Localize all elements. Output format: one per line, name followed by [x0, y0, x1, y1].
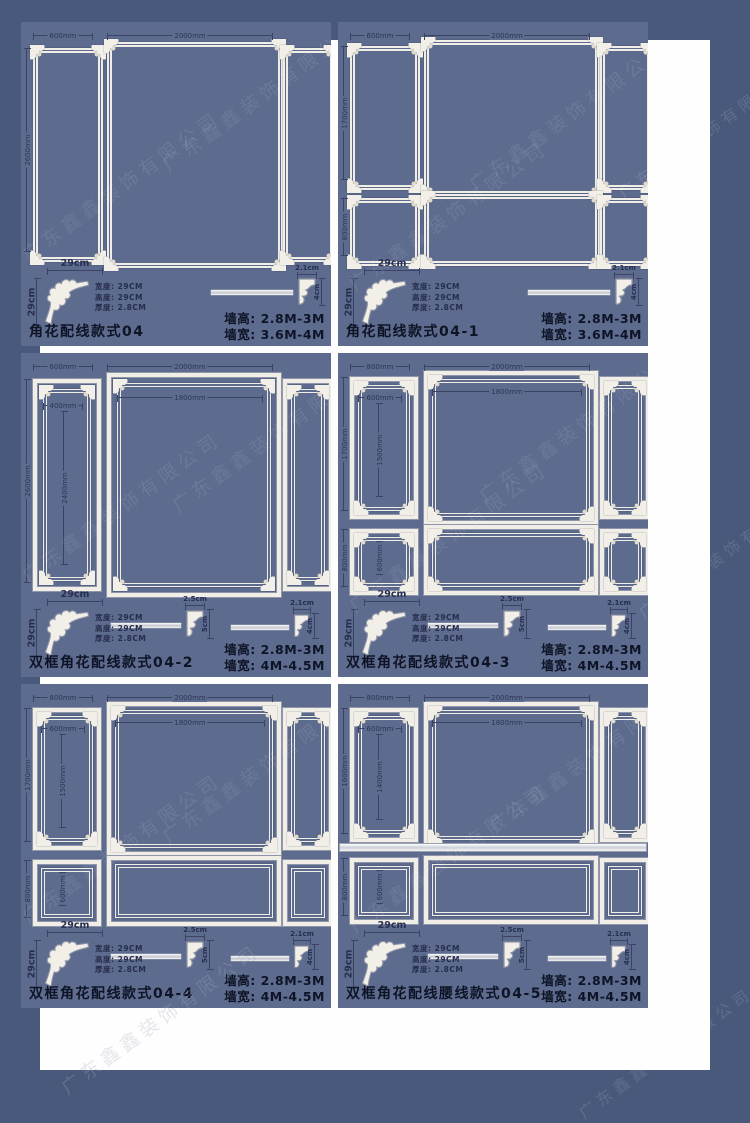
dimension-line: 2000mm	[424, 366, 590, 367]
dimension-label: 2600mm	[24, 463, 32, 498]
corner-ornament-icon	[354, 499, 370, 515]
crown-molding-image	[360, 940, 408, 988]
frame-outline	[350, 46, 420, 190]
corner-ornament-icon	[639, 253, 648, 269]
corner-ornament-icon	[639, 195, 648, 211]
dimension-line: 2000mm	[107, 35, 273, 36]
corner-ornament-icon	[421, 191, 437, 207]
frame-outline	[358, 385, 410, 511]
corner-ornament-icon	[280, 249, 296, 265]
molding-specs: 宽度: 29CM 高度: 29CM 厚度: 2.8CM	[412, 944, 463, 976]
dimension-line: 1600mm	[343, 708, 344, 834]
dimension-line: 4cm	[638, 278, 639, 306]
dimension-line: 4cm	[314, 613, 315, 639]
dimension-label: 2.1cm	[288, 599, 316, 607]
spec-height: 高度: 29CM	[95, 624, 146, 635]
dimension-line: 29cm	[353, 278, 354, 326]
corner-ornament-icon	[322, 249, 331, 265]
wall-width: 墙宽: 3.6M-4M	[541, 327, 642, 343]
corner-ornament-icon	[428, 706, 444, 722]
crown-molding-image	[360, 278, 408, 326]
panel-title: 双框角花配线腰线款式04-5	[346, 983, 542, 1003]
corner-ornament-icon	[30, 45, 46, 61]
wall-width: 墙宽: 4M-4.5M	[541, 658, 642, 674]
corner-ornament-icon	[313, 712, 329, 728]
corner-ornament-icon	[261, 836, 277, 852]
frame-outline	[432, 533, 590, 587]
dimension-label: 4cm	[623, 616, 631, 636]
dimension-line: 5cm	[209, 940, 210, 970]
dimension-line: 1500mm	[61, 734, 62, 828]
corner-ornament-icon	[428, 505, 444, 521]
corner-ornament-icon	[347, 195, 363, 211]
dimension-line: 29cm	[47, 932, 103, 933]
dimension-line: 800mm	[26, 860, 27, 918]
frame-outline	[608, 537, 642, 587]
corner-ornament-icon	[287, 830, 303, 846]
dimension-line: 600mm	[61, 872, 62, 906]
spec-thickness: 厚度: 2.8CM	[95, 965, 146, 976]
catalog-sheet: { "watermark": "广东鑫鑫装饰有限公司", "colors": {…	[0, 0, 750, 1110]
panel-title: 双框角花配线款式04-4	[29, 983, 194, 1003]
wall-width: 墙宽: 4M-4.5M	[224, 989, 325, 1005]
dimension-label: 4cm	[630, 282, 638, 302]
dimension-line: 2.1cm	[297, 274, 317, 275]
frame-outline	[432, 864, 590, 916]
dimension-line: 1700mm	[343, 46, 344, 180]
spec-width: 宽度: 29CM	[412, 282, 463, 293]
corner-ornament-icon	[578, 575, 594, 591]
frame-outline	[424, 40, 600, 196]
dimension-line: 1700mm	[343, 377, 344, 511]
corner-ornament-icon	[428, 828, 444, 844]
dimension-line: 1800mm	[117, 397, 263, 398]
dimension-label: 4cm	[623, 947, 631, 967]
frame-outline	[107, 42, 283, 268]
wall-height: 墙高: 2.8M-3M	[224, 642, 325, 658]
dimension-line: 2.1cm	[610, 609, 628, 610]
dimension-label: 2000mm	[172, 363, 207, 371]
molding-strip	[548, 625, 606, 630]
corner-ornament-icon	[597, 195, 613, 211]
dimension-line: 29cm	[364, 270, 420, 271]
dimension-line: 5cm	[526, 940, 527, 970]
corner-ornament-icon	[604, 822, 620, 838]
spec-width: 宽度: 29CM	[412, 613, 463, 624]
corner-ornament-icon	[113, 575, 129, 591]
dimension-label: 2.1cm	[605, 599, 633, 607]
wall-height: 墙高: 2.8M-3M	[541, 973, 642, 989]
dimension-label: 600mm	[365, 394, 396, 402]
dimension-label: 1600mm	[341, 753, 349, 788]
dimension-label: 800mm	[341, 212, 349, 243]
frame-outline	[432, 379, 590, 517]
dimension-label: 1800mm	[489, 719, 524, 727]
dimension-line: 2000mm	[107, 366, 273, 367]
spec-width: 宽度: 29CM	[95, 282, 146, 293]
frame-outline	[291, 868, 325, 918]
corner-ornament-icon	[604, 712, 620, 728]
dimension-line: 2.1cm	[610, 940, 628, 941]
spec-height: 高度: 29CM	[95, 293, 146, 304]
corner-ornament-icon	[39, 385, 55, 401]
corner-ornament-icon	[37, 830, 53, 846]
dimension-label: 2000mm	[489, 694, 524, 702]
dimension-label: 2.5cm	[498, 926, 526, 934]
dimension-label: 5cm	[518, 945, 526, 965]
frame-outline	[608, 716, 642, 834]
dimension-line: 29cm	[353, 940, 354, 988]
corner-ornament-icon	[604, 575, 620, 591]
dimension-label: 1700mm	[341, 95, 349, 130]
spec-height: 高度: 29CM	[95, 955, 146, 966]
corner-ornament-icon	[428, 575, 444, 591]
frame-outline	[358, 716, 410, 834]
dimension-label: 600mm	[59, 874, 67, 905]
frame-outline	[350, 198, 420, 266]
dimension-label: 2000mm	[489, 32, 524, 40]
dimension-line: 800mm	[350, 697, 410, 698]
corner-ornament-icon	[604, 499, 620, 515]
dimension-line: 1500mm	[378, 403, 379, 497]
corner-ornament-icon	[313, 385, 329, 401]
molding-strip	[211, 290, 293, 295]
spec-thickness: 厚度: 2.8CM	[95, 634, 146, 645]
dimension-label: 4cm	[306, 947, 314, 967]
wall-height: 墙高: 2.8M-3M	[224, 311, 325, 327]
frame-outline	[33, 48, 103, 262]
corner-ornament-icon	[428, 529, 444, 545]
frame-outline	[358, 866, 410, 916]
dimension-line: 29cm	[364, 601, 420, 602]
dimension-label: 29cm	[376, 591, 409, 599]
dimension-line: 600mm	[33, 35, 93, 36]
dimension-label: 2.1cm	[610, 264, 638, 272]
dimension-label: 800mm	[341, 872, 349, 903]
panel-style-04: 600mm 2000mm 2600mm 29cm 29cm 宽度: 29CM 高…	[21, 22, 331, 346]
spec-width: 宽度: 29CM	[95, 944, 146, 955]
dimension-label: 29cm	[344, 286, 355, 319]
frame-outline	[115, 864, 273, 918]
corner-ornament-icon	[354, 822, 370, 838]
dimension-line: 29cm	[364, 932, 420, 933]
corner-ornament-icon	[79, 385, 95, 401]
dimension-label: 29cm	[376, 922, 409, 930]
dimension-line: 29cm	[36, 278, 37, 326]
dimension-label: 2000mm	[489, 363, 524, 371]
crown-molding-image	[360, 609, 408, 657]
panel-title: 角花配线款式04	[29, 321, 144, 341]
spec-height: 高度: 29CM	[412, 293, 463, 304]
frame-outline	[291, 716, 325, 842]
frame-outline	[608, 866, 642, 916]
dimension-line: 2000mm	[107, 697, 273, 698]
corner-ornament-icon	[428, 375, 444, 391]
dimension-label: 29cm	[59, 591, 92, 599]
panel-style-04-4: 800mm 2000mm 1700mm 800mm 600mm 1500mm 1…	[21, 684, 331, 1008]
dimension-line: 800mm	[343, 858, 344, 916]
frame-outline	[608, 385, 642, 511]
wall-spec: 墙高: 2.8M-3M 墙宽: 4M-4.5M	[224, 642, 325, 674]
panel-style-04-2: 600mm 2000mm 2600mm 400mm 2400mm 1800mm …	[21, 353, 331, 677]
dimension-label: 800mm	[48, 694, 79, 702]
wall-height: 墙高: 2.8M-3M	[224, 973, 325, 989]
corner-ornament-icon	[630, 575, 646, 591]
frame-outline	[600, 46, 648, 190]
corner-ornament-icon	[630, 712, 646, 728]
dimension-line: 600mm	[358, 728, 402, 729]
wall-spec: 墙高: 2.8M-3M 墙宽: 4M-4.5M	[541, 642, 642, 674]
dimension-label: 29cm	[27, 617, 38, 650]
corner-ornament-icon	[639, 43, 648, 59]
dimension-line: 5cm	[526, 609, 527, 639]
panel-style-04-5: 800mm 2000mm 1600mm 800mm 600mm 1400mm 1…	[338, 684, 648, 1008]
molding-specs: 宽度: 29CM 高度: 29CM 厚度: 2.8CM	[95, 613, 146, 645]
dimension-line: 4cm	[631, 944, 632, 970]
molding-specs: 宽度: 29CM 高度: 29CM 厚度: 2.8CM	[412, 282, 463, 314]
wall-width: 墙宽: 3.6M-4M	[224, 327, 325, 343]
wall-spec: 墙高: 2.8M-3M 墙宽: 4M-4.5M	[541, 973, 642, 1005]
corner-ornament-icon	[39, 569, 55, 585]
corner-ornament-icon	[259, 379, 275, 395]
crown-molding-image	[43, 278, 91, 326]
dimension-label: 4cm	[313, 282, 321, 302]
spec-width: 宽度: 29CM	[412, 944, 463, 955]
dimension-line: 29cm	[353, 609, 354, 657]
corner-ornament-icon	[322, 45, 331, 61]
frame-outline	[115, 710, 273, 848]
dimension-label: 1700mm	[341, 426, 349, 461]
dimension-label: 800mm	[365, 363, 396, 371]
corner-ornament-icon	[639, 177, 648, 193]
dimension-label: 1800mm	[172, 719, 207, 727]
dimension-line: 2.5cm	[502, 936, 522, 937]
corner-ornament-icon	[604, 533, 620, 549]
wall-height: 墙高: 2.8M-3M	[541, 311, 642, 327]
dimension-label: 600mm	[365, 725, 396, 733]
dimension-label: 1500mm	[59, 763, 67, 798]
dimension-line: 2.1cm	[293, 609, 311, 610]
dimension-label: 600mm	[376, 543, 384, 574]
dimension-line: 29cm	[36, 940, 37, 988]
dimension-line: 29cm	[47, 270, 103, 271]
dimension-line: 800mm	[33, 697, 93, 698]
spec-thickness: 厚度: 2.8CM	[412, 965, 463, 976]
corner-ornament-icon	[113, 379, 129, 395]
dimension-line: 2.1cm	[293, 940, 311, 941]
dimension-line: 1800mm	[432, 391, 582, 392]
panel-style-04-3: 800mm 2000mm 1700mm 800mm 600mm 1500mm 1…	[338, 353, 648, 677]
corner-ornament-icon	[630, 381, 646, 397]
wall-width: 墙宽: 4M-4.5M	[224, 658, 325, 674]
corner-ornament-icon	[578, 529, 594, 545]
corner-ornament-icon	[81, 830, 97, 846]
corner-ornament-icon	[578, 505, 594, 521]
corner-ornament-icon	[313, 830, 329, 846]
dimension-label: 29cm	[59, 260, 92, 268]
panel-style-04-1: 600mm 2000mm 1700mm 800mm 29cm 29cm 宽度: …	[338, 22, 648, 346]
corner-ornament-icon	[630, 822, 646, 838]
frame-outline	[41, 716, 93, 842]
corner-ornament-icon	[354, 575, 370, 591]
dimension-line: 4cm	[631, 613, 632, 639]
frame-outline	[291, 389, 325, 581]
molding-strip	[231, 956, 289, 961]
dimension-line: 5cm	[209, 609, 210, 639]
dimension-label: 2.1cm	[288, 930, 316, 938]
dimension-label: 400mm	[48, 402, 79, 410]
dimension-label: 29cm	[59, 922, 92, 930]
dimension-label: 5cm	[518, 614, 526, 634]
spec-thickness: 厚度: 2.8CM	[412, 303, 463, 314]
dimension-line: 600mm	[41, 728, 85, 729]
dimension-label: 2.5cm	[498, 595, 526, 603]
dimension-line: 1400mm	[378, 734, 379, 820]
dimension-line: 400mm	[43, 405, 83, 406]
dimension-label: 600mm	[365, 32, 396, 40]
dimension-label: 800mm	[341, 543, 349, 574]
dimension-label: 1800mm	[172, 394, 207, 402]
corner-ornament-icon	[398, 533, 414, 549]
dimension-line: 29cm	[47, 601, 103, 602]
corner-ornament-icon	[259, 575, 275, 591]
spec-thickness: 厚度: 2.8CM	[95, 303, 146, 314]
chair-rail	[340, 844, 646, 851]
frame-outline	[41, 868, 93, 918]
dimension-label: 1500mm	[376, 432, 384, 467]
corner-ornament-icon	[354, 533, 370, 549]
molding-specs: 宽度: 29CM 高度: 29CM 厚度: 2.8CM	[412, 613, 463, 645]
crown-molding-image	[43, 940, 91, 988]
panel-title: 双框角花配线款式04-3	[346, 652, 511, 672]
corner-ornament-icon	[280, 45, 296, 61]
frame-outline	[283, 48, 331, 262]
dimension-label: 29cm	[344, 617, 355, 650]
corner-ornament-icon	[287, 385, 303, 401]
frame-outline	[117, 383, 271, 587]
frame-outline	[432, 710, 590, 840]
corner-ornament-icon	[111, 706, 127, 722]
wall-spec: 墙高: 2.8M-3M 墙宽: 3.6M-4M	[541, 311, 642, 343]
frame-outline	[600, 198, 648, 266]
dimension-line: 600mm	[350, 35, 410, 36]
dimension-line: 4cm	[321, 278, 322, 306]
spec-height: 高度: 29CM	[412, 624, 463, 635]
dimension-line: 2000mm	[424, 697, 590, 698]
dimension-line: 2600mm	[26, 48, 27, 252]
dimension-line: 2.5cm	[185, 936, 205, 937]
corner-ornament-icon	[398, 822, 414, 838]
dimension-label: 1400mm	[376, 759, 384, 794]
spec-thickness: 厚度: 2.8CM	[412, 634, 463, 645]
dimension-label: 2.1cm	[293, 264, 321, 272]
corner-ornament-icon	[604, 381, 620, 397]
dimension-label: 29cm	[27, 948, 38, 981]
molding-specs: 宽度: 29CM 高度: 29CM 厚度: 2.8CM	[95, 944, 146, 976]
wall-spec: 墙高: 2.8M-3M 墙宽: 3.6M-4M	[224, 311, 325, 343]
molding-strip	[231, 625, 289, 630]
dimension-line: 2.5cm	[185, 605, 205, 606]
corner-ornament-icon	[111, 836, 127, 852]
corner-ornament-icon	[578, 828, 594, 844]
dimension-line: 2400mm	[63, 411, 64, 565]
dimension-label: 1800mm	[489, 388, 524, 396]
dimension-label: 2400mm	[61, 470, 69, 505]
dimension-label: 600mm	[376, 872, 384, 903]
dimension-label: 600mm	[48, 725, 79, 733]
frame-outline	[424, 194, 600, 266]
dimension-label: 2.1cm	[605, 930, 633, 938]
corner-ornament-icon	[630, 499, 646, 515]
panel-title: 角花配线款式04-1	[346, 321, 480, 341]
dimension-line: 2.1cm	[614, 274, 634, 275]
corner-ornament-icon	[347, 43, 363, 59]
dimension-line: 1800mm	[115, 722, 265, 723]
corner-ornament-icon	[630, 533, 646, 549]
dimension-line: 2600mm	[26, 379, 27, 583]
dimension-label: 29cm	[376, 260, 409, 268]
corner-ornament-icon	[313, 569, 329, 585]
corner-ornament-icon	[597, 43, 613, 59]
corner-ornament-icon	[287, 569, 303, 585]
dimension-line: 4cm	[314, 944, 315, 970]
wall-height: 墙高: 2.8M-3M	[541, 642, 642, 658]
panel-title: 双框角花配线款式04-2	[29, 652, 194, 672]
dimension-line: 600mm	[358, 397, 402, 398]
dimension-line: 600mm	[33, 366, 93, 367]
molding-strip	[548, 956, 606, 961]
crown-molding-image	[43, 609, 91, 657]
dimension-label: 5cm	[201, 614, 209, 634]
dimension-label: 29cm	[344, 948, 355, 981]
frame-outline	[358, 537, 410, 587]
dimension-label: 5cm	[201, 945, 209, 965]
molding-strip	[528, 290, 610, 295]
dimension-line: 800mm	[343, 529, 344, 587]
dimension-label: 600mm	[48, 363, 79, 371]
corner-ornament-icon	[347, 177, 363, 193]
spec-height: 高度: 29CM	[412, 955, 463, 966]
dimension-label: 2600mm	[24, 132, 32, 167]
dimension-line: 600mm	[378, 870, 379, 904]
dimension-label: 29cm	[27, 286, 38, 319]
dimension-label: 2000mm	[172, 32, 207, 40]
molding-specs: 宽度: 29CM 高度: 29CM 厚度: 2.8CM	[95, 282, 146, 314]
wall-width: 墙宽: 4M-4.5M	[541, 989, 642, 1005]
dimension-label: 600mm	[48, 32, 79, 40]
dimension-line: 2.5cm	[502, 605, 522, 606]
dimension-label: 1700mm	[24, 757, 32, 792]
dimension-label: 2.5cm	[181, 595, 209, 603]
dimension-line: 2000mm	[424, 35, 590, 36]
dimension-label: 4cm	[306, 616, 314, 636]
dimension-line: 600mm	[378, 541, 379, 575]
dimension-label: 800mm	[365, 694, 396, 702]
dimension-line: 1800mm	[432, 722, 582, 723]
dimension-line: 1700mm	[26, 708, 27, 842]
dimension-label: 2.5cm	[181, 926, 209, 934]
dimension-line: 800mm	[350, 366, 410, 367]
spec-width: 宽度: 29CM	[95, 613, 146, 624]
corner-ornament-icon	[79, 569, 95, 585]
dimension-line: 800mm	[343, 198, 344, 256]
corner-ornament-icon	[104, 39, 120, 55]
corner-ornament-icon	[398, 499, 414, 515]
dimension-line: 29cm	[36, 609, 37, 657]
corner-ornament-icon	[287, 712, 303, 728]
wall-spec: 墙高: 2.8M-3M 墙宽: 4M-4.5M	[224, 973, 325, 1005]
dimension-label: 2000mm	[172, 694, 207, 702]
